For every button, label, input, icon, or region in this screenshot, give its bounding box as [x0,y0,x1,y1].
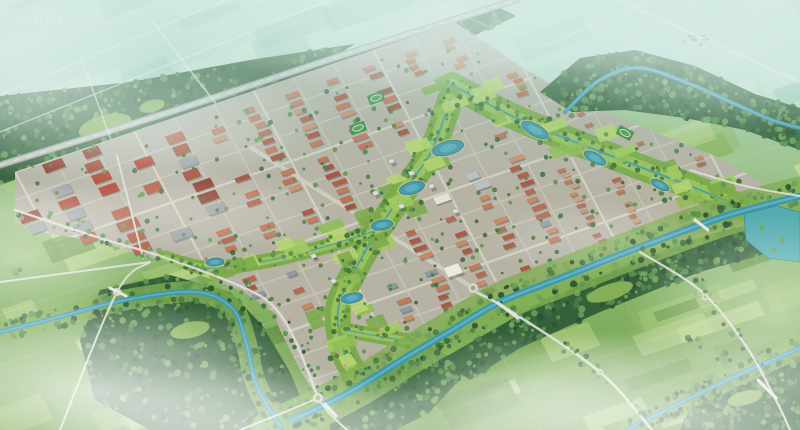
tree-canopy [562,303,566,307]
riparian-tree [364,367,367,370]
riparian-tree [425,332,431,338]
tree-canopy [531,310,538,317]
riparian-tree [388,352,391,355]
riparian-tree [240,306,245,311]
roadside-tree [482,289,486,293]
park-tree [412,208,416,212]
tree-canopy [551,308,555,312]
street-tree [403,259,407,263]
park-tree [396,214,400,218]
riparian-tree [519,278,523,282]
riparian-tree [761,193,765,197]
park-tree [328,355,334,361]
street-tree [434,283,439,288]
riparian-tree [467,308,472,313]
tree-canopy [164,274,170,280]
roadside-tree [179,258,184,263]
blossom-tree [343,364,346,367]
blossom-tree [398,320,401,323]
riparian-tree [199,297,204,302]
park-tree [662,198,668,204]
tree-canopy [617,300,622,305]
street-tree [431,238,434,241]
street-tree [476,191,480,195]
park-tree [368,207,373,212]
roadside-tree [272,314,277,319]
riparian-tree [512,282,518,288]
park-tree [385,326,390,331]
tree-canopy [578,312,584,318]
roadside-tree [534,323,537,326]
riparian-tree [730,200,735,205]
riparian-tree [188,281,194,287]
park-tree [357,315,362,320]
park-tree [199,272,202,275]
riparian-tree [460,308,464,312]
street-tree [464,267,467,270]
blossom-tree [336,350,339,353]
park-tree [328,235,332,239]
riparian-tree [428,327,432,331]
park-tree [343,327,347,331]
roundabout-island [471,286,476,291]
park-tree [342,288,346,292]
park-tree [407,216,410,219]
riparian-tree [491,317,494,320]
park-tree [668,197,672,201]
park-tree [319,306,324,311]
park-tree [331,329,337,335]
tree-canopy [566,301,570,305]
park-tree [343,315,347,319]
park-tree [340,318,344,322]
street-tree [430,273,434,277]
riparian-tree [373,357,380,364]
riparian-tree [376,365,380,369]
street-tree [381,257,384,260]
street-tree [508,201,512,205]
park-tree [363,236,366,239]
roadside-tree [229,286,233,290]
riparian-tree [745,193,750,198]
park-tree [381,336,384,339]
street-tree [277,303,281,307]
park-tree [273,264,276,267]
blossom-tree [301,328,304,331]
park-tree [376,250,380,254]
park-tree [242,267,246,271]
park-tree [344,233,349,238]
roadside-tree [270,297,274,301]
street-tree [650,197,653,200]
tree-canopy [573,303,579,309]
park-tree [341,259,344,262]
mist-cloud [480,198,720,278]
riparian-tree [390,346,396,352]
street-tree [389,288,392,291]
park-tree [383,333,388,338]
street-tree [323,295,327,299]
street-tree [420,278,423,281]
riparian-tree [145,289,150,294]
roadside-tree [190,271,193,274]
street-tree [404,326,409,331]
park-tree [356,240,361,245]
roadside-tree [477,297,481,301]
blossom-tree [378,328,381,331]
tree-canopy [492,328,497,333]
street-tree [417,217,422,222]
tree-canopy [509,322,515,328]
riparian-tree [497,313,500,316]
park-tree [343,280,346,283]
riparian-tree [483,324,488,329]
riparian-tree [532,278,536,282]
street-tree [388,284,392,288]
street-tree [501,272,504,275]
roadside-tree [239,290,243,294]
street-tree [440,247,444,251]
riparian-tree [472,323,478,329]
riparian-tree [717,205,722,210]
street-tree [507,193,510,196]
riparian-tree [367,366,371,370]
street-tree [307,342,309,344]
tree-canopy [576,318,583,325]
tree-canopy [556,315,560,319]
riparian-tree [552,290,557,295]
roadside-tree [517,312,522,317]
tree-canopy [577,296,583,302]
riparian-tree [523,280,530,287]
riparian-tree [208,285,214,291]
riparian-tree [570,280,577,287]
park-tree [355,336,357,338]
street-tree [441,232,444,235]
tree-canopy [552,322,557,327]
park-tree [379,203,384,208]
scene-canvas [0,0,800,430]
riparian-tree [387,356,392,361]
riparian-tree [188,297,193,302]
street-tree [318,263,322,267]
park-tree [342,310,345,313]
street-tree [475,219,479,223]
riparian-tree [788,202,794,208]
blossom-tree [353,338,356,341]
park-tree [306,252,309,255]
riparian-tree [757,192,760,195]
park-tree [334,316,338,320]
park-tree [232,257,236,261]
park-tree [350,232,354,236]
park-tree [380,191,384,195]
riparian-tree [415,331,421,337]
roadside-tree [219,280,222,283]
street-tree [435,239,439,243]
park-tree [362,349,366,353]
tree-canopy [554,303,561,310]
street-tree [243,279,248,284]
park-tree [683,195,688,200]
park-tree [314,246,317,249]
park-tree [383,209,386,212]
street-tree [336,298,340,302]
park-tree [355,325,358,328]
street-tree [447,292,450,295]
park-tree [345,242,349,246]
tree-canopy [537,314,544,321]
park-tree [350,324,352,326]
roadside-tree [249,297,252,300]
park-tree [202,264,204,266]
riparian-tree [553,285,558,290]
blossom-tree [308,298,311,301]
tree-canopy [550,303,555,308]
roadside-tree [288,321,291,324]
park-tree [272,250,276,254]
street-tree [403,321,406,324]
park-tree [359,326,364,331]
park-tree [317,307,320,310]
park-tree [347,280,351,284]
tree-canopy [175,277,179,281]
roadside-tree [505,313,509,317]
riparian-tree [457,330,463,336]
park-tree [234,265,237,268]
street-tree [302,264,305,267]
street-tree [245,284,248,287]
park-tree [355,228,361,234]
park-tree [363,272,366,275]
riparian-tree [447,321,452,326]
atmosphere-glow [0,0,800,120]
riparian-tree [703,212,708,217]
park-tree [346,268,351,273]
street-tree [309,336,313,340]
street-tree [433,264,436,267]
tree-canopy [578,305,585,312]
park-tree [374,237,377,240]
riparian-tree [165,284,171,290]
street-tree [459,220,462,223]
roadside-tree [261,303,266,308]
blossom-tree [203,256,206,259]
roadside-tree [488,294,493,299]
riparian-tree [536,294,540,298]
park-tree [349,352,352,355]
riparian-tree [470,328,475,333]
aerial-masterplan-rendering [0,0,800,430]
park-tree [419,200,424,205]
street-tree [286,298,290,302]
tree-canopy [143,279,149,285]
park-tree [288,251,293,256]
riparian-tree [450,316,456,322]
tree-canopy [513,327,517,331]
riparian-tree [381,361,387,367]
blossom-tree [226,266,229,269]
park-tree [346,308,351,313]
riparian-tree [382,354,387,359]
riparian-tree [182,283,189,290]
park-tree [362,243,367,248]
street-tree [494,197,497,200]
street-tree [440,218,442,220]
street-tree [471,255,475,259]
tree-canopy [599,302,604,307]
riparian-tree [506,285,510,289]
blossom-tree [323,340,326,343]
roadside-tree [528,317,530,319]
riparian-tree [495,309,500,314]
roadside-tree [525,325,527,327]
tree-canopy [154,278,161,285]
street-tree [460,257,465,262]
park-tree [320,241,324,245]
street-tree [475,248,479,252]
street-tree [414,301,418,305]
riparian-tree [753,195,758,200]
roadside-tree [514,309,517,312]
riparian-tree [580,282,585,287]
riparian-tree [766,196,771,201]
park-tree [333,323,337,327]
roadside-tree [214,272,218,276]
park-tree [349,263,352,266]
tree-canopy [544,309,551,316]
park-tree [331,250,334,253]
street-tree [249,283,251,285]
park-tree [363,302,366,305]
street-tree [308,329,312,333]
roundabout [468,283,478,293]
